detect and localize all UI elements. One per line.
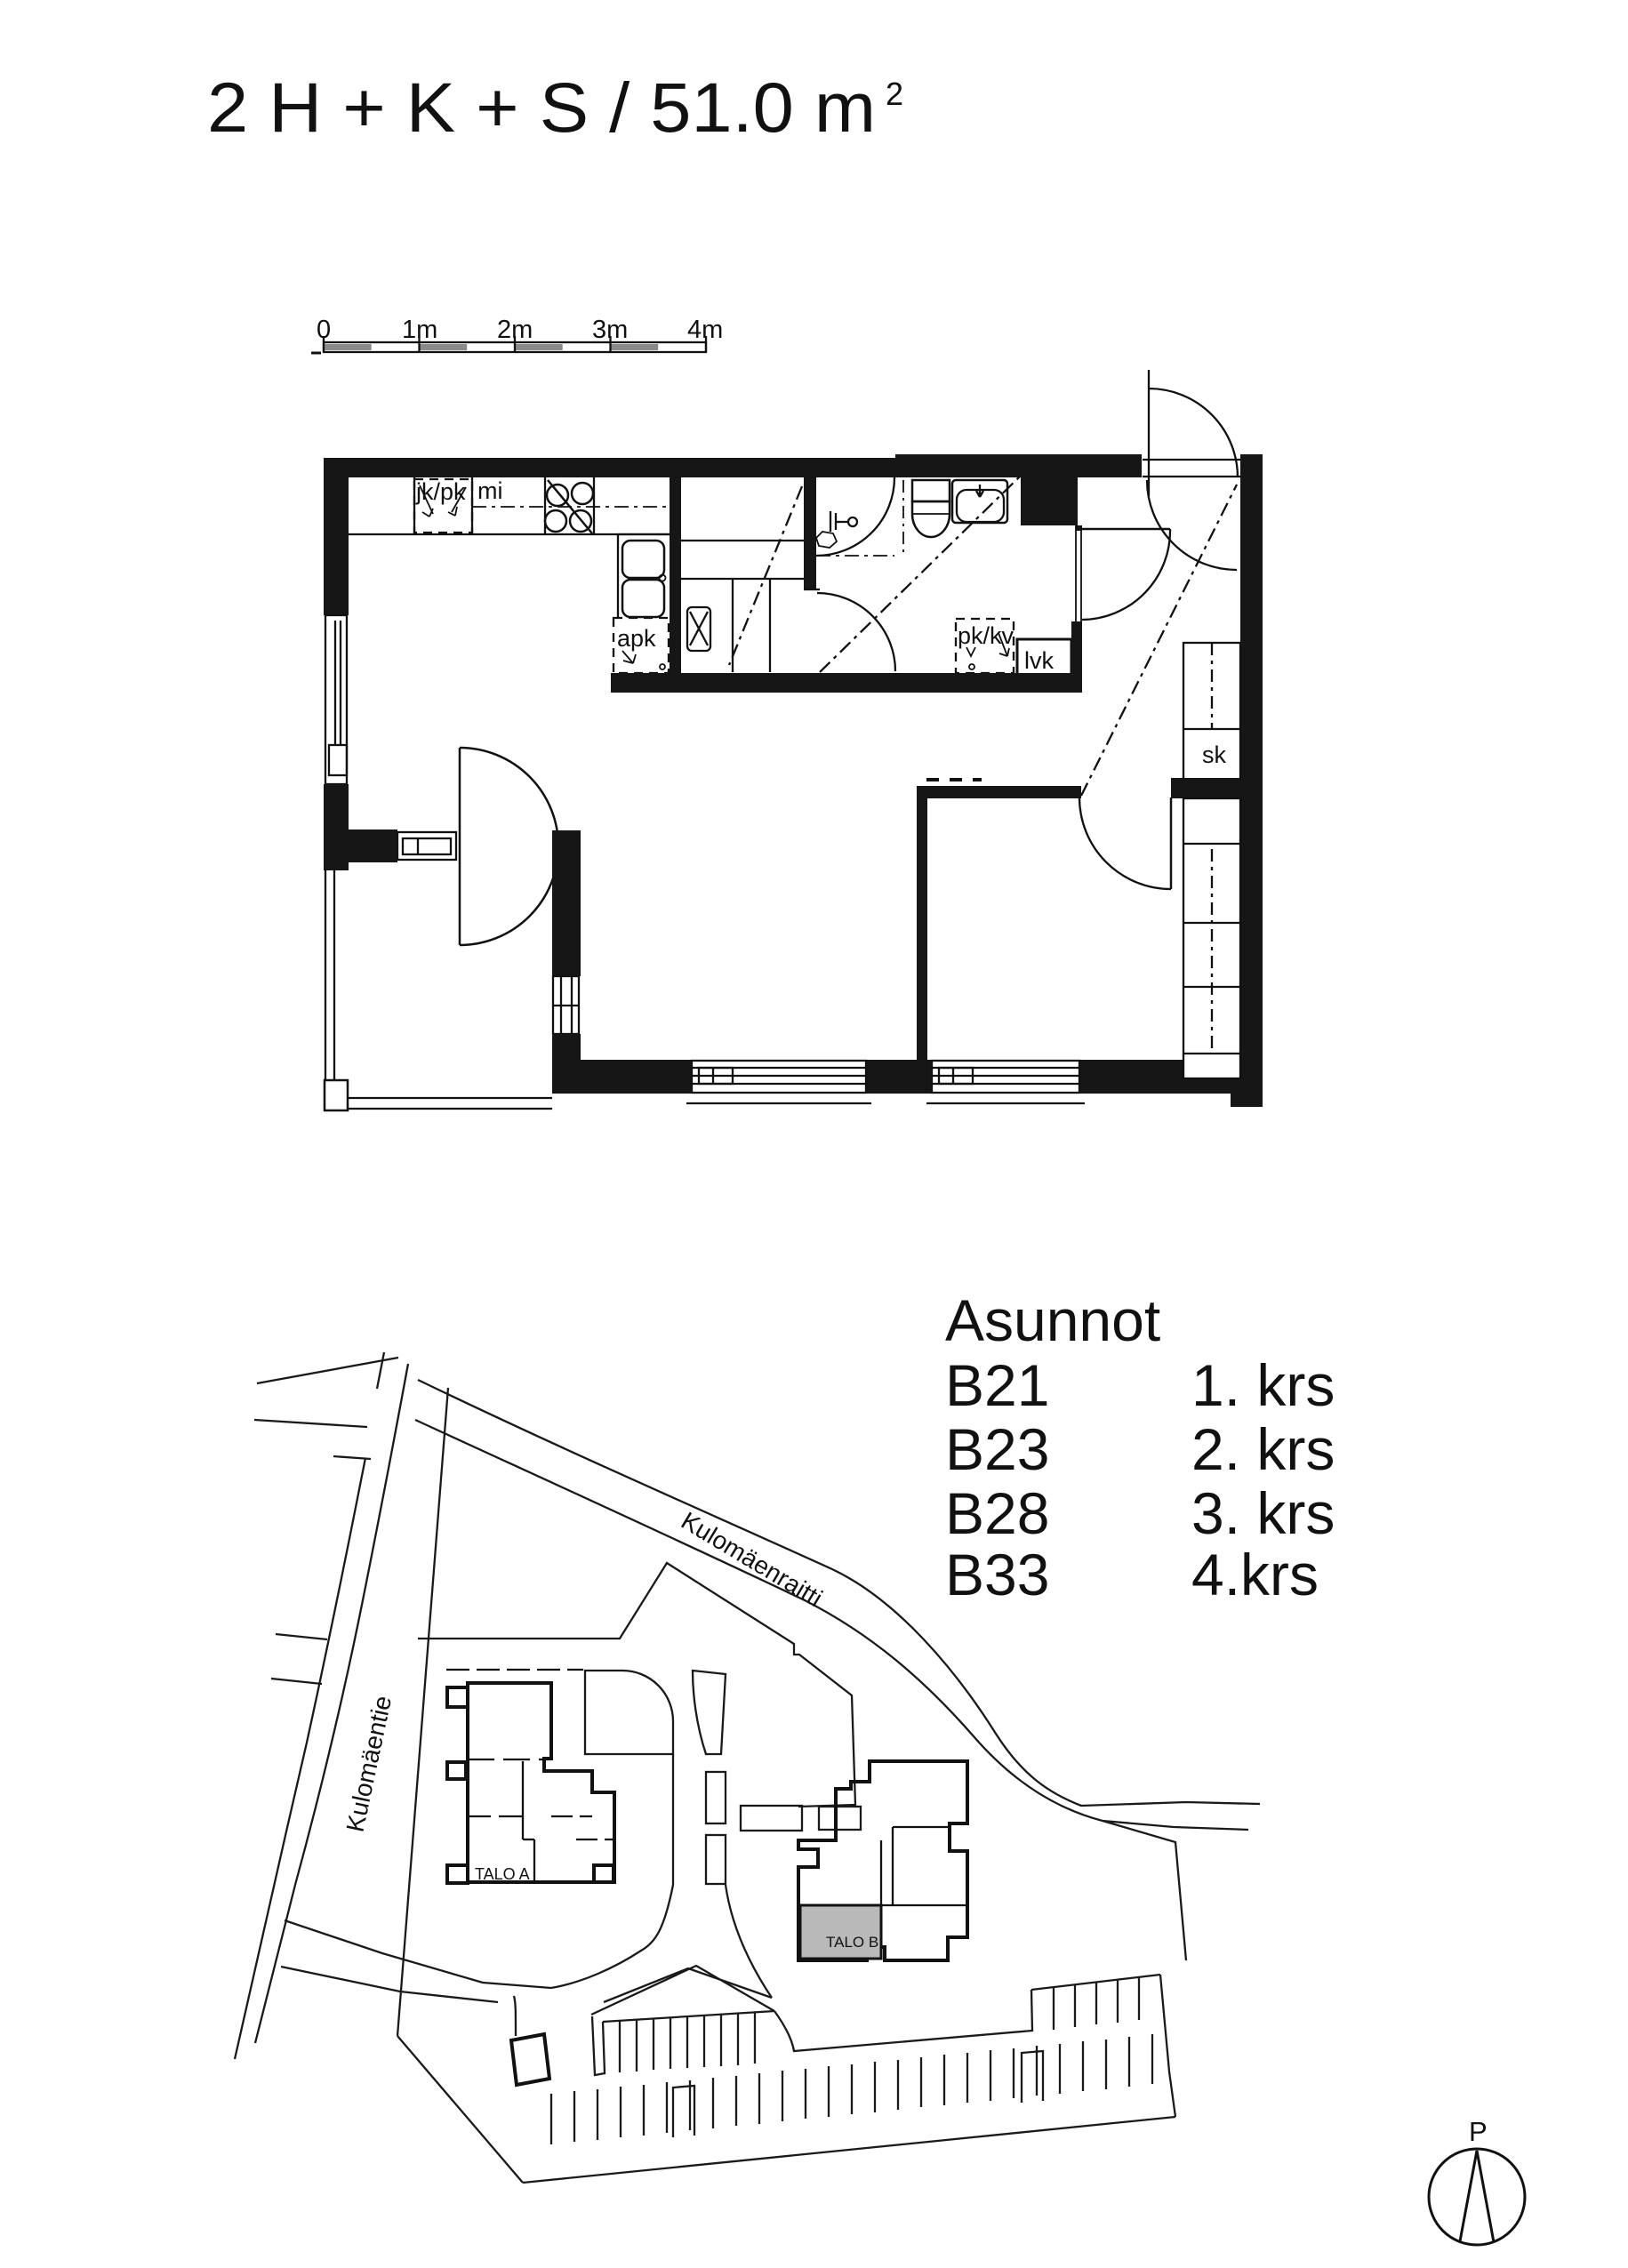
svg-text:B23: B23 (945, 1416, 1049, 1482)
svg-text:B28: B28 (945, 1480, 1049, 1546)
svg-text:sk: sk (1202, 741, 1227, 768)
svg-text:2 H + K + S / 51.0 m: 2 H + K + S / 51.0 m (207, 68, 876, 147)
svg-text:mi: mi (477, 477, 503, 504)
svg-text:3. krs: 3. krs (1191, 1480, 1335, 1546)
svg-text:P: P (1469, 2116, 1488, 2147)
svg-text:jk/pk: jk/pk (415, 478, 466, 505)
svg-text:pk/kv: pk/kv (958, 622, 1014, 649)
svg-text:apk: apk (617, 625, 656, 652)
svg-text:3m: 3m (592, 316, 628, 344)
svg-text:TALO B: TALO B (826, 1934, 878, 1951)
svg-text:Asunnot: Asunnot (945, 1287, 1160, 1353)
svg-text:0: 0 (317, 316, 331, 344)
svg-text:4.krs: 4.krs (1191, 1542, 1319, 1607)
svg-text:2m: 2m (497, 316, 533, 344)
svg-text:2: 2 (886, 76, 903, 112)
svg-text:TALO A: TALO A (475, 1865, 530, 1883)
svg-text:1m: 1m (402, 316, 437, 344)
svg-text:4m: 4m (687, 316, 723, 344)
svg-text:lvk: lvk (1024, 647, 1054, 674)
svg-text:1. krs: 1. krs (1191, 1352, 1335, 1418)
svg-text:2. krs: 2. krs (1191, 1416, 1335, 1482)
svg-text:B33: B33 (945, 1542, 1049, 1607)
svg-text:B21: B21 (945, 1352, 1049, 1418)
